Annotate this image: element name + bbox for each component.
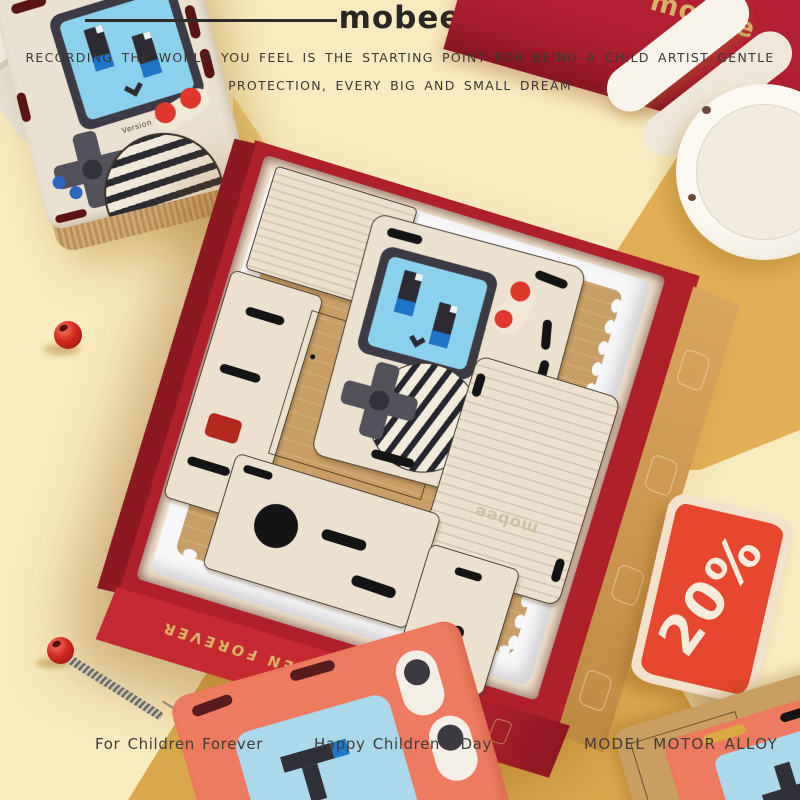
stamp-icon (578, 668, 614, 713)
white-button (391, 645, 450, 720)
pixel-eye-right (429, 302, 458, 348)
tagline-line1: RECORDING THE WORLD YOU FEEL IS THE STAR… (0, 50, 800, 65)
cut-slot (245, 306, 286, 326)
stamp-icon (643, 453, 679, 498)
faceplate-screen (366, 256, 488, 371)
cut-slot (186, 455, 231, 476)
cut-slot (219, 363, 262, 384)
bead-hole (58, 323, 69, 332)
red-bead (47, 637, 74, 664)
product-photo: Ctrl Version 1.0 (0, 0, 800, 800)
footer-caption-right: MODEL MOTOR ALLOY (584, 735, 778, 753)
back-panel-logo: mobee (432, 490, 579, 551)
cut-slot (534, 269, 569, 290)
bead-hole (51, 639, 62, 648)
header-line-left (85, 19, 337, 22)
red-window (204, 412, 244, 445)
headphone-speck (702, 106, 711, 114)
pixel (302, 763, 327, 800)
spring-wire (60, 651, 165, 721)
pixel-smile (409, 331, 425, 347)
cut-slot (350, 574, 397, 599)
pixel-eye-left (394, 270, 423, 316)
ear-cushion (696, 104, 800, 240)
brand-logo: mobee (336, 0, 464, 36)
cut-slot (550, 558, 566, 584)
round-hole (249, 499, 304, 554)
vent-slat (191, 693, 234, 718)
cut-slot (779, 706, 800, 723)
cut-slot (320, 528, 367, 552)
vent-slat (289, 659, 336, 682)
headphone-speck (688, 194, 696, 201)
footer-caption-left: For Children Forever (95, 735, 263, 753)
stamp-icon (610, 563, 646, 608)
cut-slot (242, 464, 273, 480)
cut-slot (541, 319, 553, 350)
stamp-icon (676, 348, 712, 393)
red-bead (54, 321, 82, 349)
cut-slot (386, 227, 423, 245)
cut-slot (471, 372, 487, 398)
tagline-line2: PROTECTION, EVERY BIG AND SMALL DREAM (0, 78, 800, 93)
vent-slat (10, 0, 47, 15)
cut-slot (454, 566, 483, 582)
footer-caption-center: Happy Children's Day (303, 735, 503, 753)
